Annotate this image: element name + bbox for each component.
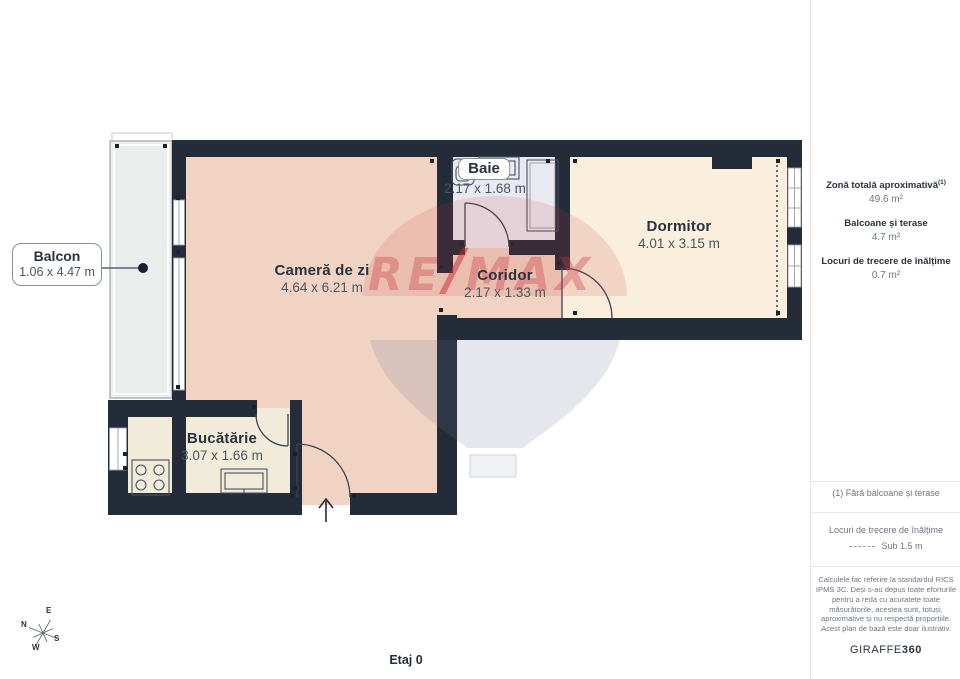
balconies-label: Balcoane și terase — [811, 218, 960, 229]
compass-e-label: E — [46, 606, 51, 615]
legend-row: Sub 1.5 m — [811, 541, 960, 551]
room-dims: 3.07 x 1.66 m — [181, 448, 263, 463]
area-summary-sidebar: Zonă totală aproximativă(1) 49.6 m² Balc… — [810, 0, 960, 679]
low-clearance-value: 0.7 m² — [811, 270, 960, 281]
area-summary: Zonă totală aproximativă(1) 49.6 m² Balc… — [811, 179, 960, 294]
giraffe360-logo: GIRAFFE360 — [811, 644, 960, 656]
room-label-balcon: Balcon 1.06 x 4.47 m — [12, 243, 102, 286]
low-clearance-label: Locuri de trecere de înălțime — [811, 256, 960, 267]
floorplan-page: RE / MAX Balcon 1.06 x 4.47 m Cameră de … — [0, 0, 960, 679]
room-dims: 1.06 x 4.47 m — [13, 265, 101, 279]
room-label-baie: Baie — [458, 158, 510, 180]
room-dims: 4.01 x 3.15 m — [638, 236, 720, 251]
compass-w-label: W — [32, 643, 40, 652]
brand-name: GIRAFFE — [850, 644, 902, 656]
balconies-value: 4.7 m² — [811, 232, 960, 243]
disclaimer-text: Calculele fac referire la standardul RIC… — [815, 575, 957, 634]
room-name: Coridor — [464, 267, 546, 284]
legend-value: Sub 1.5 m — [881, 541, 922, 551]
room-label-camera-de-zi: Cameră de zi 4.64 x 6.21 m — [275, 262, 370, 295]
room-dims: 2.17 x 1.33 m — [464, 285, 546, 300]
divider — [811, 481, 960, 482]
room-label-coridor: Coridor 2.17 x 1.33 m — [464, 267, 546, 300]
total-area-label: Zonă totală aproximativă(1) — [811, 179, 960, 191]
divider — [811, 512, 960, 513]
room-name: Bucătărie — [181, 430, 263, 447]
footnote-marker: (1) — [938, 179, 946, 186]
room-label-bucatarie: Bucătărie 3.07 x 1.66 m — [181, 430, 263, 463]
floor-label: Etaj 0 — [389, 653, 422, 667]
room-label-dormitor: Dormitor 4.01 x 3.15 m — [638, 218, 720, 251]
legend-label: Locuri de trecere de înălțime — [811, 525, 960, 535]
room-dims: 4.64 x 6.21 m — [275, 280, 370, 295]
total-area-value: 49.6 m² — [811, 194, 960, 205]
room-name: Cameră de zi — [275, 262, 370, 279]
legend: Locuri de trecere de înălțime Sub 1.5 m — [811, 525, 960, 551]
compass-s-label: S — [54, 634, 59, 643]
room-name: Balcon — [13, 248, 101, 264]
room-dims-baie: 2.17 x 1.68 m — [444, 181, 526, 196]
compass-n-label: N — [21, 620, 27, 629]
divider — [811, 566, 960, 567]
dashed-line-sample — [849, 546, 875, 547]
room-name: Dormitor — [638, 218, 720, 235]
brand-suffix: 360 — [902, 644, 922, 656]
footnote-text: (1) Fără balcoane și terase — [811, 488, 960, 498]
